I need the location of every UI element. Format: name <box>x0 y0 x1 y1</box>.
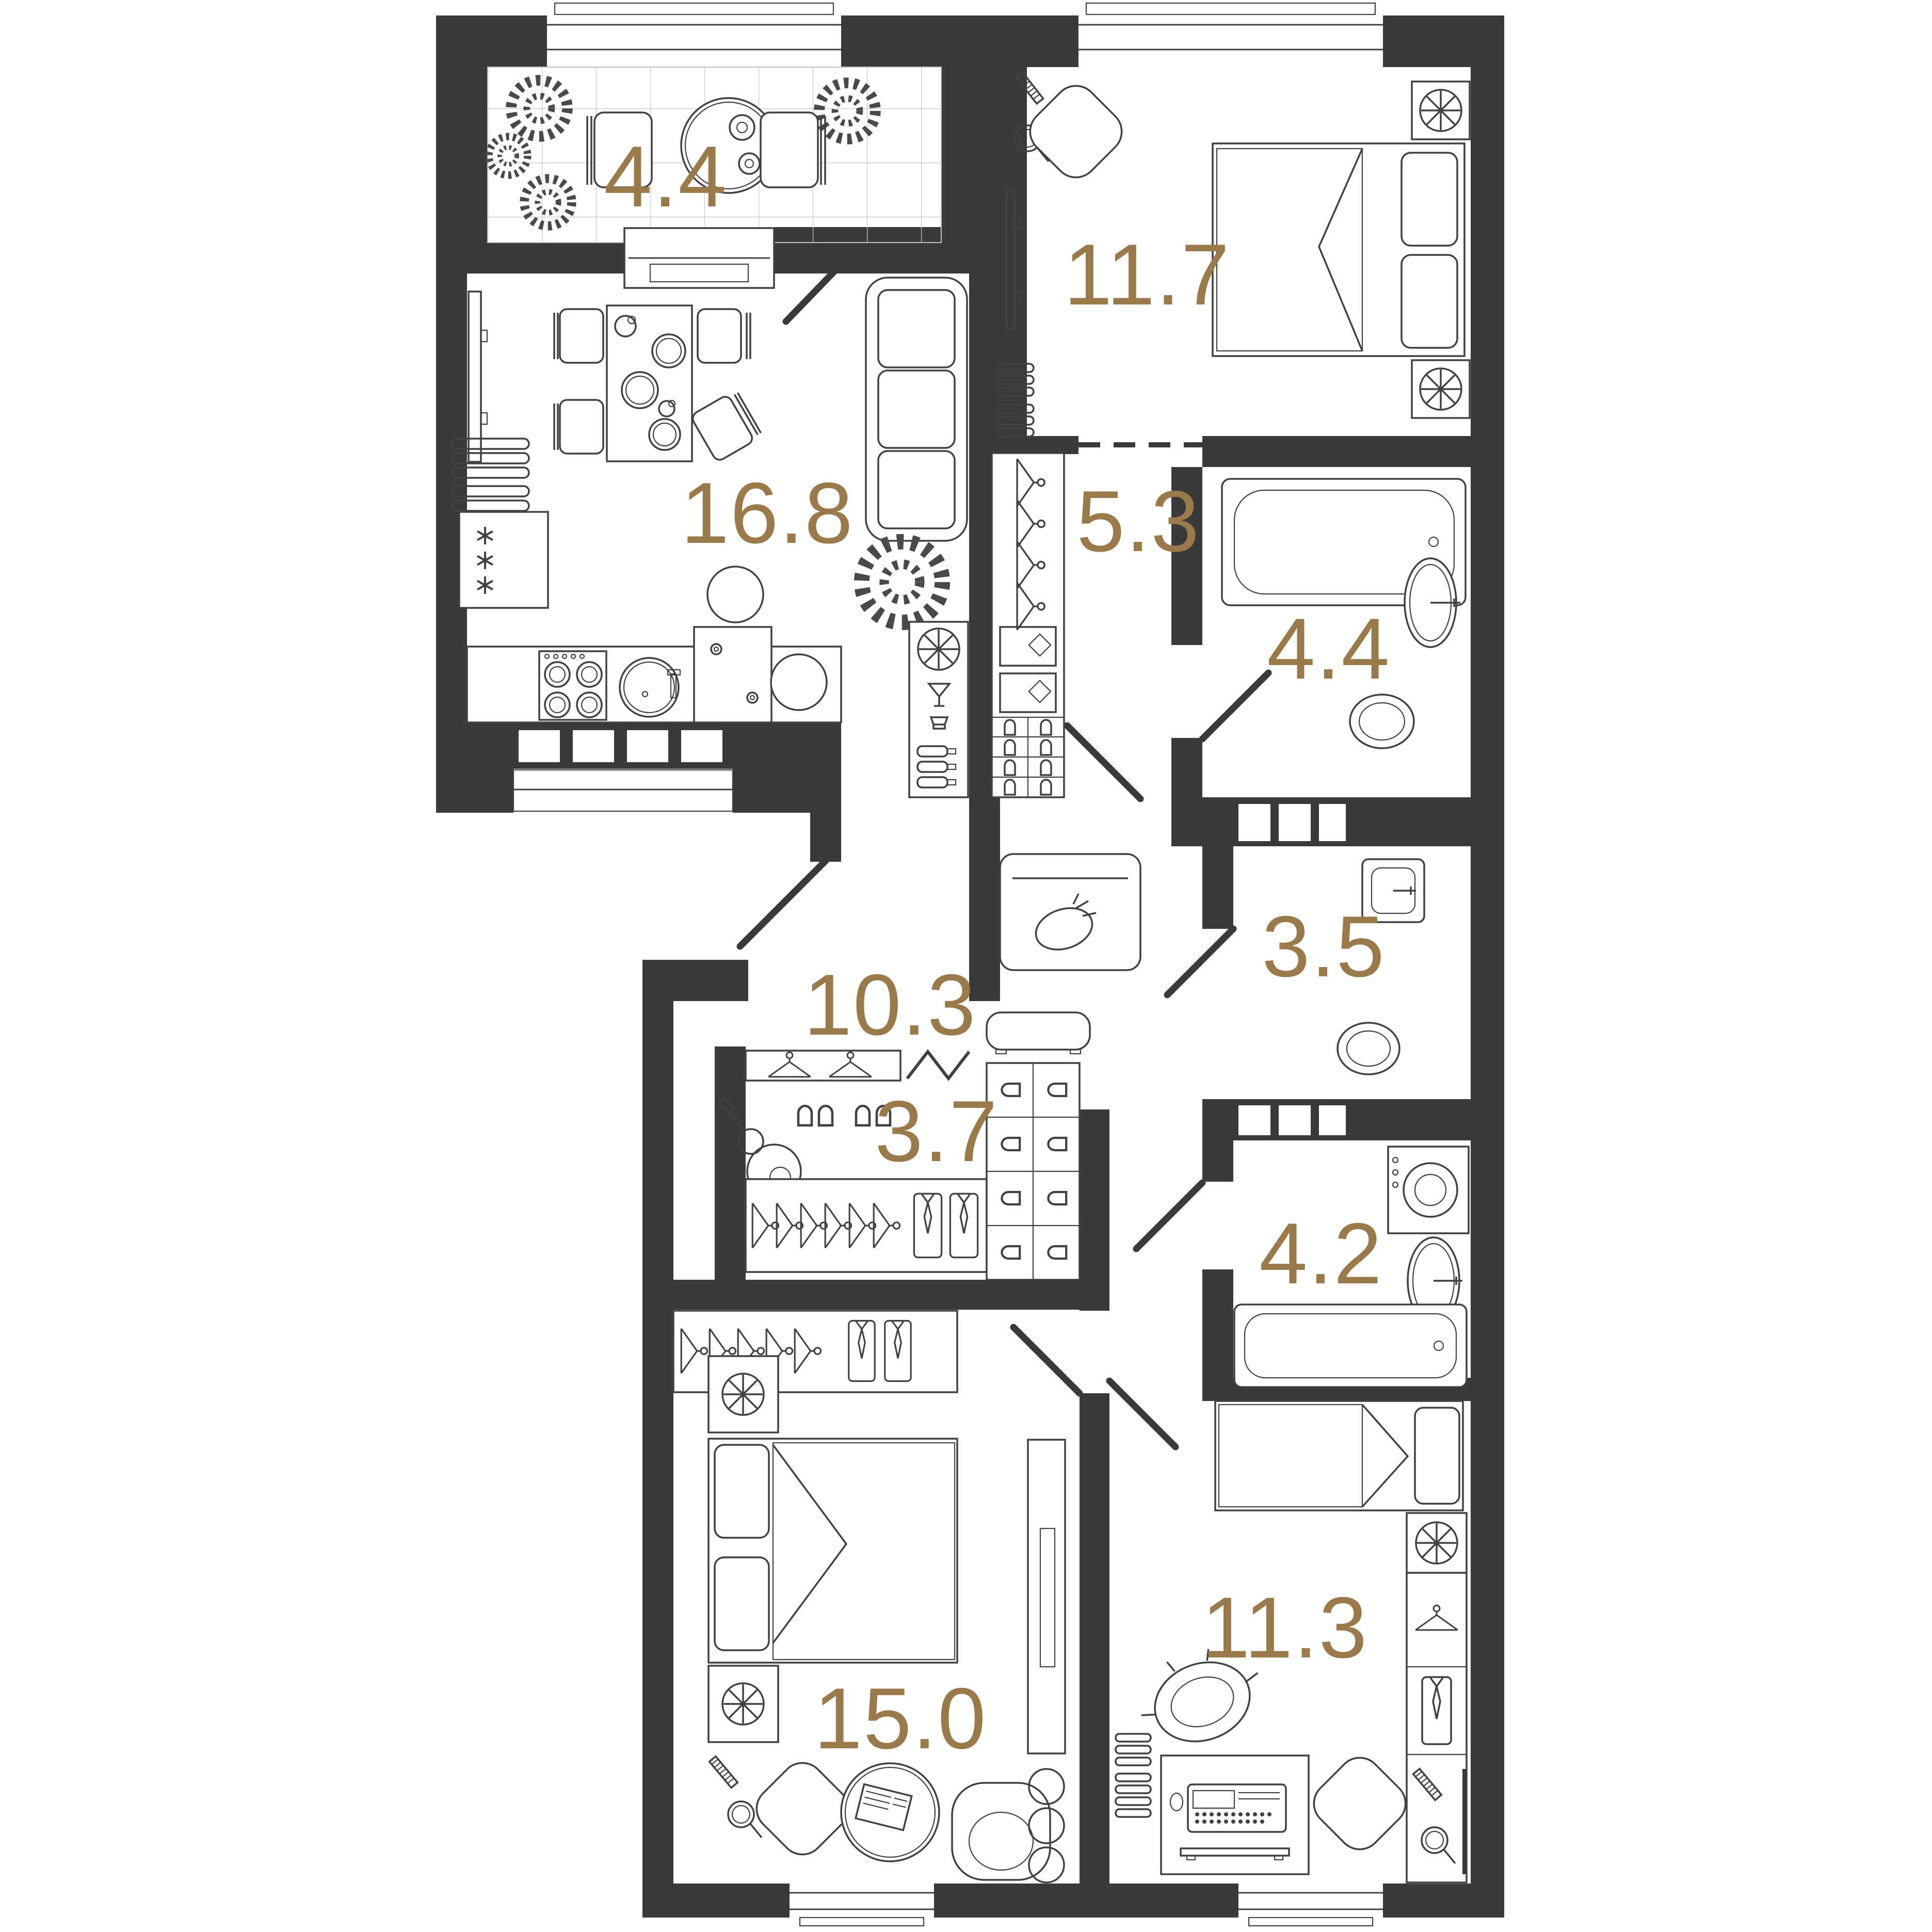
opening-zigzag <box>907 1052 969 1078</box>
balcony-door <box>624 228 774 288</box>
nightstand-lamp-icon <box>1412 360 1470 418</box>
bar-stool-icon <box>771 654 827 710</box>
washing-machine-icon <box>1388 1147 1469 1233</box>
label-balcony: 4.4 <box>604 128 728 225</box>
comb-icon <box>710 1757 738 1788</box>
wall-mirror-icon <box>1462 1769 1467 1874</box>
chair-icon <box>554 309 603 363</box>
door-swing <box>1167 929 1233 995</box>
chair-icon <box>554 400 603 454</box>
nightstand-lamp-icon <box>1412 82 1470 139</box>
sofa-icon <box>866 278 967 541</box>
armchair-icon <box>952 1783 1050 1880</box>
label-kitchen-living: 16.8 <box>681 464 854 561</box>
label-hallway: 5.3 <box>1076 473 1200 570</box>
tv-icon <box>469 292 487 462</box>
hanger-rod-row <box>746 1179 987 1272</box>
chair-icon <box>690 390 763 462</box>
shelf-hangers <box>746 1051 900 1081</box>
door-swing <box>1136 1183 1202 1249</box>
wall-mirror-icon <box>1000 72 1004 170</box>
bar-stool-icon <box>707 567 763 622</box>
floor-plan: 4.4 11.7 16.8 5.3 4.4 3.5 10.3 3.7 4.2 1… <box>0 0 1932 1932</box>
desk-icon <box>1161 1756 1309 1874</box>
chair-icon <box>1021 77 1131 186</box>
room-corridor <box>987 1012 1090 1054</box>
chair-icon <box>761 112 825 187</box>
entrance-vestibule <box>1000 854 1140 970</box>
bathtub-icon <box>1234 1305 1467 1387</box>
bar-cabinet-icon <box>909 622 968 797</box>
label-bedroom-top: 11.7 <box>1064 226 1231 323</box>
bedroom-left-window <box>790 1885 934 1926</box>
bedroom-top-window <box>1078 3 1383 66</box>
dining-table-icon <box>607 305 692 461</box>
label-bathroom-bottom: 4.2 <box>1259 1205 1383 1302</box>
wardrobe-tv-icon <box>1028 1440 1065 1753</box>
wardrobe-icon <box>1407 1573 1467 1882</box>
label-bathroom-top: 4.4 <box>1267 600 1391 697</box>
door-swing <box>740 861 826 946</box>
toilet-icon <box>1338 1023 1399 1074</box>
room-bedroom-left <box>673 1311 1080 1882</box>
nightstand-lamp-icon <box>709 1666 778 1742</box>
vent-box-icon <box>1407 1513 1467 1573</box>
bench-icon <box>987 1012 1090 1054</box>
balcony-window <box>547 3 841 66</box>
door-swing <box>1202 673 1268 739</box>
room-kitchen-living <box>452 278 968 946</box>
coffee-table-icon <box>841 1763 939 1861</box>
entrance-door-swing <box>1067 726 1140 799</box>
single-bed-icon <box>1215 1401 1463 1510</box>
label-corridor: 10.3 <box>804 956 977 1053</box>
toilet-shaft-grille <box>1238 1105 1346 1135</box>
door-swing <box>1013 1327 1080 1393</box>
chair-icon <box>1305 1749 1414 1858</box>
double-bed-icon <box>1213 143 1464 356</box>
chair-icon <box>698 309 750 363</box>
radiator-icon <box>1116 1734 1151 1817</box>
door-swing <box>1109 1381 1176 1447</box>
double-bed-icon <box>709 1439 957 1663</box>
shoe-shelf-icon <box>987 1063 1080 1280</box>
label-bedroom-left: 15.0 <box>814 1670 987 1767</box>
label-closet: 3.7 <box>875 1083 999 1180</box>
kitchen-island <box>694 627 771 722</box>
nightstand-lamp-icon <box>709 1356 778 1432</box>
plant-icon <box>862 542 942 622</box>
fridge-icon <box>459 512 548 608</box>
label-toilet: 3.5 <box>1262 898 1386 995</box>
bath-top-shaft-grille <box>1238 804 1346 841</box>
toilet-icon <box>1350 695 1414 748</box>
label-bedroom-right: 11.3 <box>1202 1579 1369 1676</box>
bedroom-right-window <box>1238 1885 1383 1926</box>
